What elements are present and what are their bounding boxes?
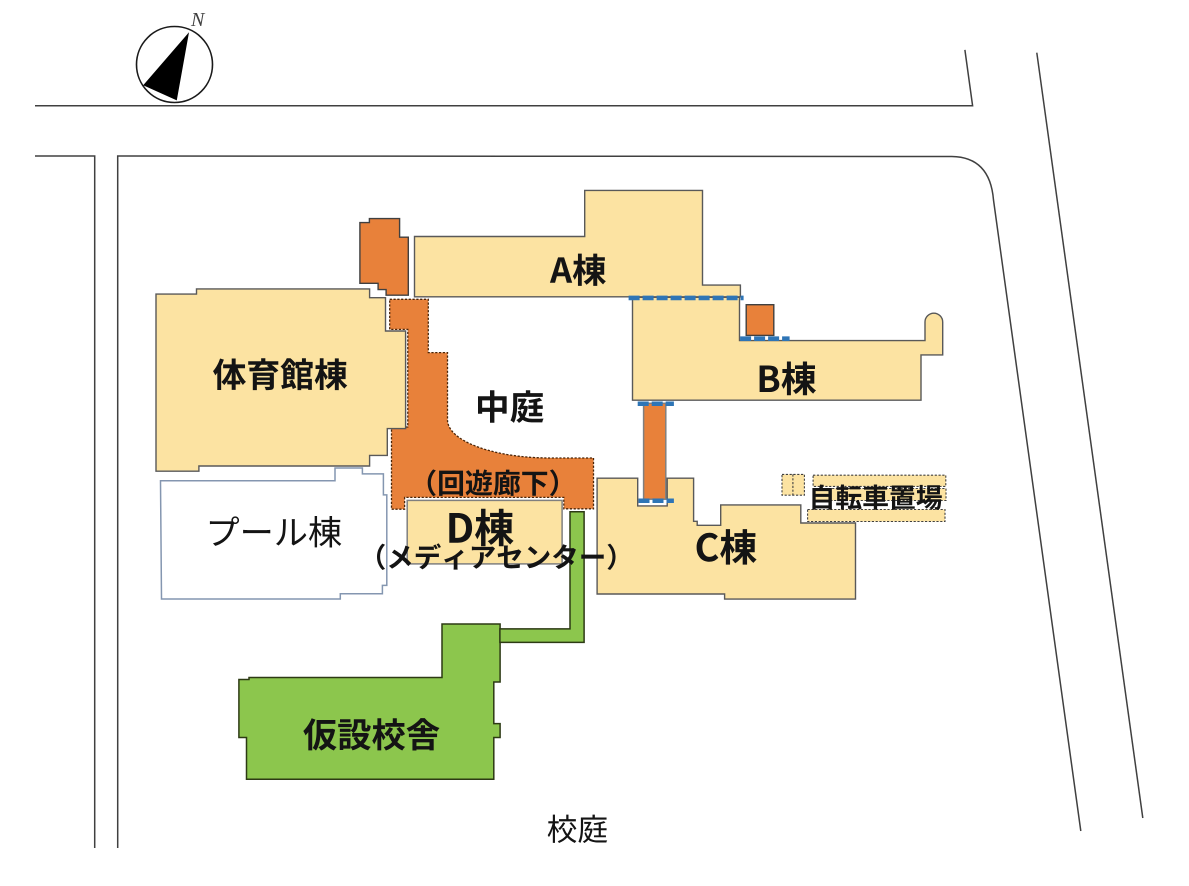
svg-text:N: N <box>190 9 206 31</box>
